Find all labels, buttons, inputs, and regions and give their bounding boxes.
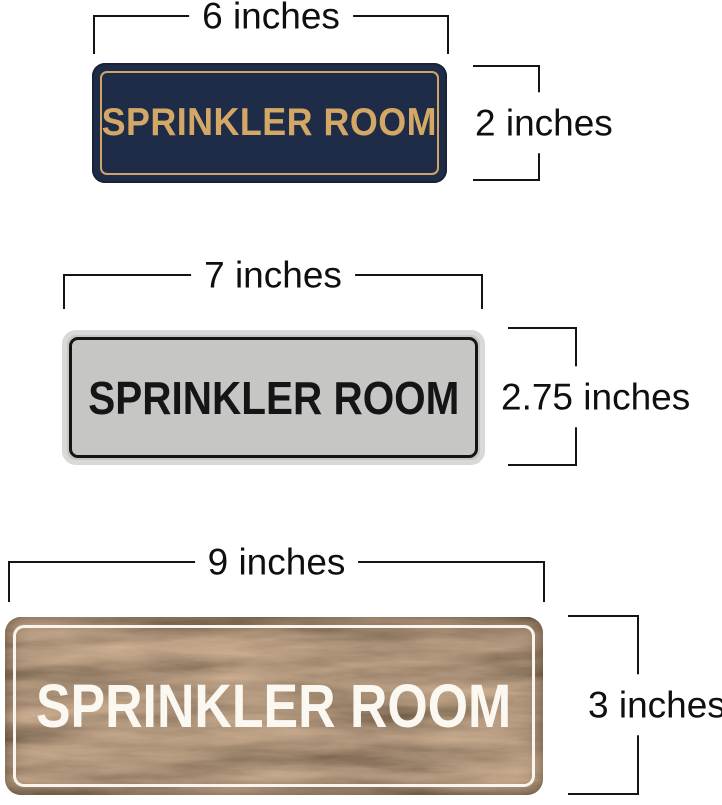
height-dimension-bracket-wood: 3 inches [568,615,639,795]
height-dimension-bracket-navy: 2 inches [473,65,540,181]
height-dimension-label-navy: 2 inches [473,92,615,153]
sign-silver: SPRINKLER ROOM [62,330,485,465]
sign-silver-text: SPRINKLER ROOM [88,371,459,425]
height-dimension-label-wood: 3 inches [586,674,722,735]
sign-navy-text: SPRINKLER ROOM [102,101,437,145]
height-dimension-label-silver: 2.75 inches [499,366,692,427]
width-dimension-bracket-wood: 9 inches [8,561,545,602]
height-dimension-bracket-silver: 2.75 inches [508,327,577,466]
width-dimension-label-silver: 7 inches [191,254,355,295]
sign-wood-text: SPRINKLER ROOM [36,671,511,741]
sign-navy: SPRINKLER ROOM [92,63,447,183]
width-dimension-bracket-silver: 7 inches [63,274,483,309]
width-dimension-label-navy: 6 inches [189,0,353,37]
width-dimension-label-wood: 9 inches [195,541,359,582]
width-dimension-bracket-navy: 6 inches [93,15,449,54]
sign-size-diagram: 6 inches SPRINKLER ROOM 2 inches 7 inche… [0,0,722,805]
sign-wood: SPRINKLER ROOM [5,617,543,795]
